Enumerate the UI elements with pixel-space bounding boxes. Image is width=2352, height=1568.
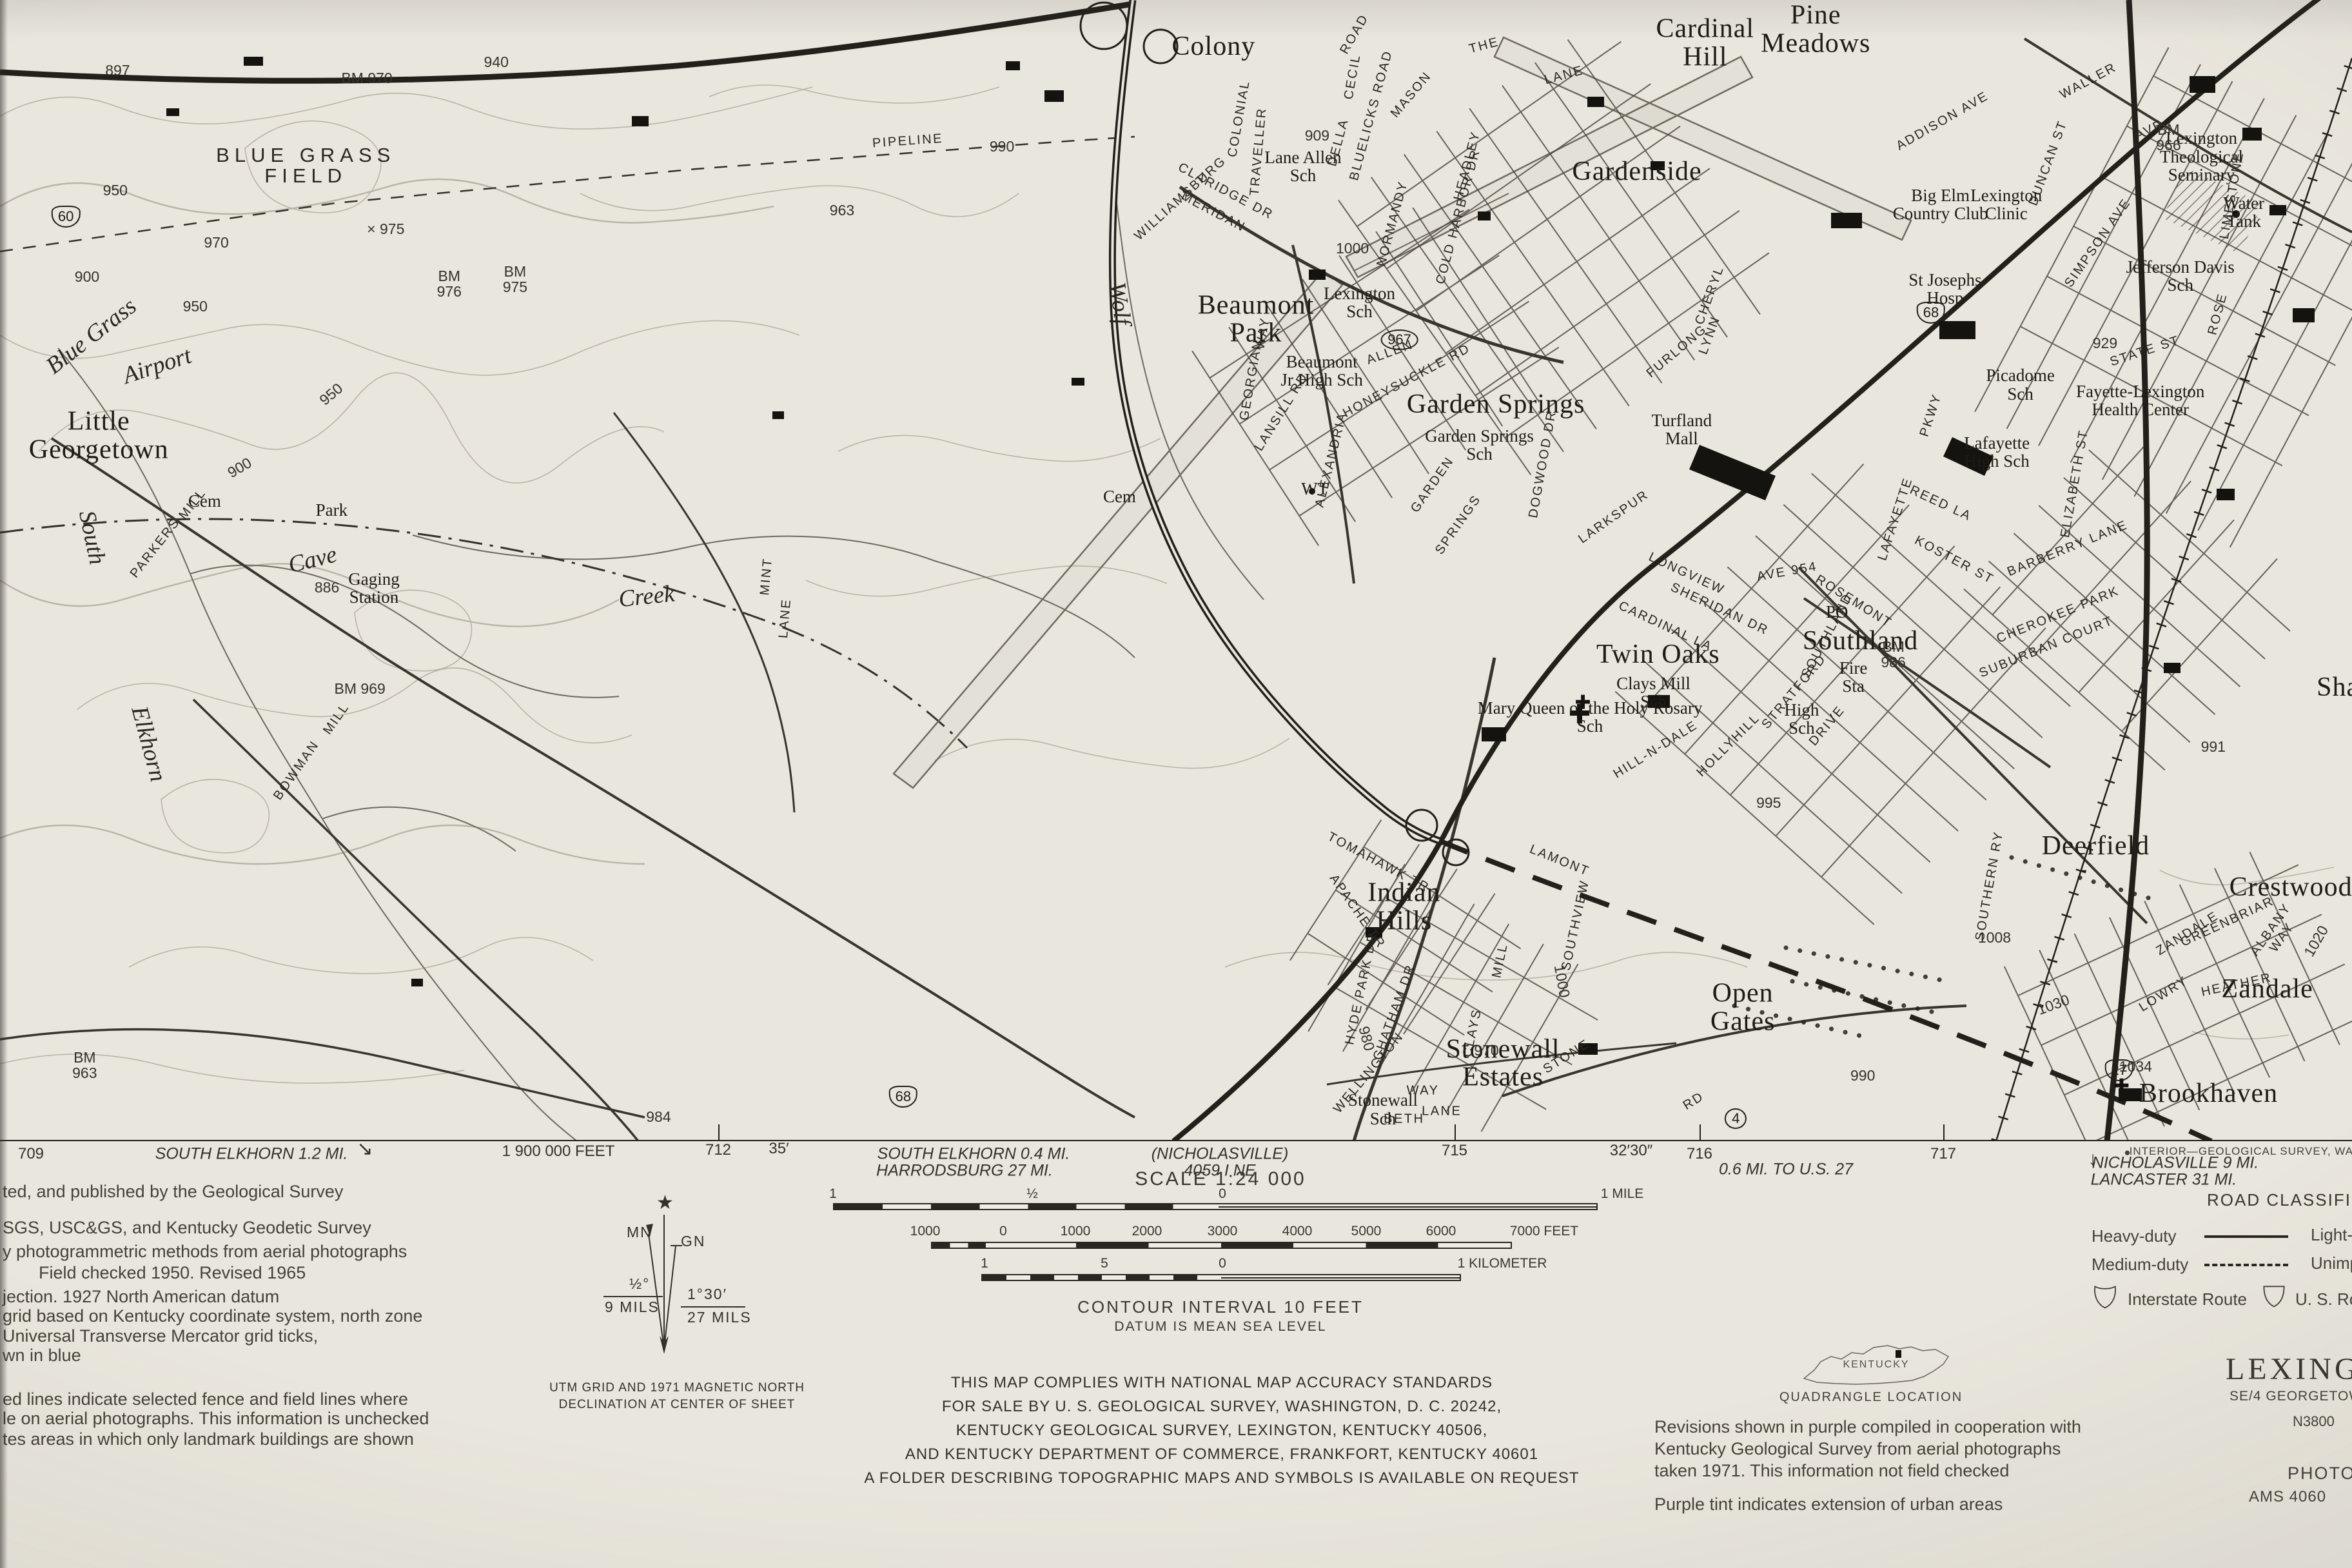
scale-label: 5	[1101, 1256, 1108, 1271]
scale-label: 1000	[910, 1224, 941, 1239]
unimproved-label: Unimproved dirt	[2311, 1253, 2352, 1273]
scale-label: 4000	[1282, 1224, 1313, 1239]
credit-line: le on aerial photographs. This informati…	[3, 1409, 429, 1429]
edge-label: 709	[18, 1145, 44, 1163]
sale-line: THIS MAP COMPLIES WITH NATIONAL MAP ACCU…	[796, 1371, 1647, 1395]
revision-line: Kentucky Geological Survey from aerial p…	[1654, 1438, 2183, 1460]
heavy-duty-symbol	[2204, 1235, 2288, 1238]
edge-label: HARRODSBURG 27 MI.	[876, 1162, 1053, 1181]
credit-line: Universal Transverse Mercator grid ticks…	[3, 1326, 318, 1346]
declination-caption-2: DECLINATION AT CENTER OF SHEET	[542, 1398, 812, 1412]
scale-label: 7000 FEET	[1510, 1224, 1578, 1239]
credit-line: ted, and published by the Geological Sur…	[3, 1182, 343, 1202]
scale-label: 2000	[1132, 1224, 1162, 1239]
quad-marker	[1896, 1350, 1901, 1358]
edge-label: NICHOLASVILLE 9 MI.	[2092, 1154, 2259, 1173]
scale-label: 1 KILOMETER	[1458, 1256, 1547, 1271]
photorevised-note: PHOTO	[2288, 1464, 2352, 1484]
north-star-icon: ★	[656, 1191, 675, 1214]
scale-label: 0	[999, 1224, 1007, 1239]
edge-label: LANCASTER 31 MI.	[2091, 1171, 2237, 1190]
edge-label: 0.6 MI. TO U.S. 27	[1719, 1161, 1853, 1179]
scale-label: 1	[829, 1186, 837, 1202]
scale-bar-km	[981, 1274, 1461, 1281]
edge-label: SOUTH ELKHORN 0.4 MI.	[877, 1145, 1070, 1164]
credit-line: wn in blue	[3, 1346, 81, 1366]
scale-label: 6000	[1426, 1224, 1456, 1239]
sale-text-block: THIS MAP COMPLIES WITH NATIONAL MAP ACCU…	[796, 1371, 1647, 1490]
medium-duty-label: Medium-duty	[2092, 1255, 2188, 1275]
us-route-label: U. S. Route	[2295, 1289, 2352, 1309]
scale-label: 1 MILE	[1601, 1186, 1644, 1202]
credit-line: jection. 1927 North American datum	[3, 1287, 279, 1307]
road-classification-title: ROAD CLASSIFICATION	[2207, 1190, 2352, 1210]
road-classification-legend: ROAD CLASSIFICATION Heavy-duty Light-dut…	[2088, 1190, 2352, 1358]
inset-state-label: KENTUCKY	[1799, 1359, 1954, 1371]
edge-label: 35′	[769, 1140, 789, 1158]
medium-duty-symbol	[2204, 1264, 2288, 1266]
credit-line: y photogrammetric methods from aerial ph…	[3, 1242, 407, 1262]
revision-line: Revisions shown in purple compiled in co…	[1654, 1416, 2183, 1438]
declination-caption-1: UTM GRID AND 1971 MAGNETIC NORTH	[542, 1381, 812, 1395]
contour-interval-note: CONTOUR INTERVAL 10 FEET	[1077, 1297, 1364, 1317]
revision-line: taken 1971. This information not field c…	[1654, 1460, 2183, 1482]
quadrangle-subtitle: SE/4 GEORGETOWN	[2229, 1389, 2352, 1404]
credit-line: Field checked 1950. Revised 1965	[39, 1263, 306, 1283]
credit-line: grid based on Kentucky coordinate system…	[3, 1306, 422, 1326]
mn-mils-label: 9 MILS	[605, 1298, 660, 1316]
declination-diagram: ★ MN GN ½° 9 MILS 1°30′ 27 MILS UTM GRID…	[567, 1188, 774, 1420]
edge-label: ↘	[357, 1138, 373, 1161]
heavy-duty-label: Heavy-duty	[2092, 1226, 2177, 1246]
grid-north-label: GN	[681, 1233, 706, 1250]
sale-line: KENTUCKY GEOLOGICAL SURVEY, LEXINGTON, K…	[796, 1418, 1647, 1442]
light-duty-label: Light-duty	[2311, 1225, 2352, 1245]
edge-label: 716	[1687, 1145, 1712, 1163]
edge-label: 715	[1442, 1142, 1467, 1160]
credit-line: SGS, USC&GS, and Kentucky Geodetic Surve…	[3, 1218, 371, 1238]
underline	[603, 1296, 663, 1297]
scale-bar-feet	[931, 1242, 1512, 1249]
magnetic-north-label: MN	[627, 1224, 652, 1241]
sale-line: FOR SALE BY U. S. GEOLOGICAL SURVEY, WAS…	[796, 1395, 1647, 1418]
us-route-shield-icon	[2259, 1282, 2289, 1310]
edge-label: (NICHOLASVILLE)	[1151, 1145, 1289, 1164]
credit-line: ed lines indicate selected fence and fie…	[3, 1389, 408, 1409]
inset-caption: QUADRANGLE LOCATION	[1779, 1390, 1963, 1405]
gn-mils-label: 27 MILS	[687, 1309, 752, 1326]
scale-label: 1	[981, 1256, 988, 1271]
sale-line: AND KENTUCKY DEPARTMENT OF COMMERCE, FRA…	[796, 1442, 1647, 1466]
scale-label: 1000	[1061, 1224, 1091, 1239]
edge-label: SOUTH ELKHORN 1.2 MI.	[155, 1145, 348, 1164]
scale-label: 5000	[1351, 1224, 1382, 1239]
revisions-text-block: Revisions shown in purple compiled in co…	[1654, 1416, 2183, 1515]
scale-label: ½	[1026, 1186, 1038, 1202]
scale-title: SCALE 1:24 000	[1135, 1168, 1306, 1190]
datum-note: DATUM IS MEAN SEA LEVEL	[1114, 1319, 1326, 1335]
edge-label: 1 900 000 FEET	[502, 1142, 615, 1161]
ams-sheet-number: AMS 4060	[2249, 1488, 2326, 1506]
quadrangle-coordinates: N3800	[2293, 1413, 2335, 1430]
purple-tint-note: Purple tint indicates extension of urban…	[1654, 1493, 2183, 1515]
credit-line: tes areas in which only landmark buildin…	[3, 1429, 414, 1449]
usgs-topo-map-scan: { "map": { "labels": [ {"t":"Colony","x"…	[0, 0, 2352, 1568]
sale-line: A FOLDER DESCRIBING TOPOGRAPHIC MAPS AND…	[796, 1466, 1647, 1490]
scale-label: 0	[1219, 1256, 1226, 1271]
underline	[681, 1306, 745, 1308]
quadrangle-name: LEXINGTON	[2226, 1351, 2352, 1387]
edge-label: 717	[1930, 1145, 1956, 1163]
mn-degrees-label: ½°	[629, 1275, 650, 1293]
interstate-route-label: Interstate Route	[2128, 1289, 2247, 1309]
scale-bar-miles	[833, 1203, 1598, 1210]
edge-label: 32′30″	[1610, 1142, 1652, 1160]
interstate-shield-icon	[2090, 1282, 2120, 1311]
scale-label: 3000	[1208, 1224, 1238, 1239]
gn-degrees-label: 1°30′	[687, 1286, 727, 1303]
edge-label: 712	[705, 1141, 731, 1159]
